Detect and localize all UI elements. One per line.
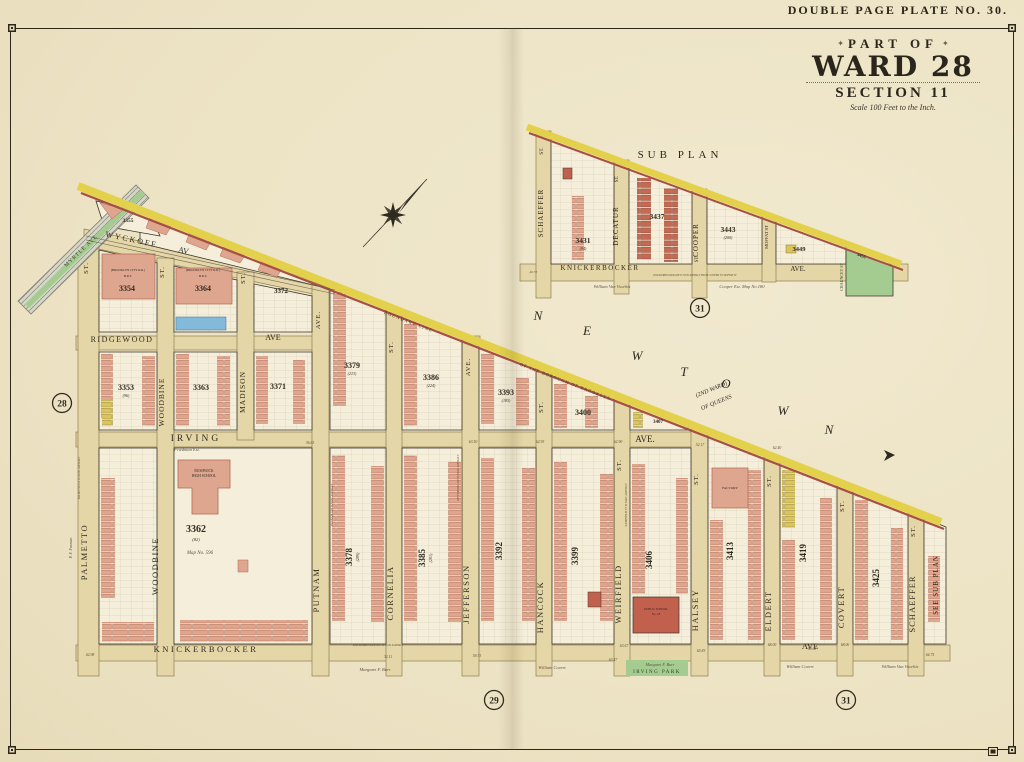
rowhouses <box>481 354 494 424</box>
asphalt-note: JEFFERSON AVE IS NOW ASPHALT <box>456 455 460 501</box>
building-label-bushwick-hs: HIGH SCHOOL <box>192 474 216 478</box>
asphalt-note: KNICKERBOCKER AVE IS NOW ASPHALT <box>352 644 404 647</box>
block-number-3419: 3419 <box>798 544 808 563</box>
pond <box>176 317 226 330</box>
dimension: 32.11 <box>384 655 392 659</box>
rowhouses <box>600 474 613 621</box>
building-label: (BROOKLYN CITY R.R.) <box>111 268 145 272</box>
street-label: ST. <box>83 262 90 274</box>
svg-text:31: 31 <box>841 696 851 706</box>
block-subnumber: (224) <box>427 383 436 388</box>
rowhouses <box>180 620 308 642</box>
block-number-3379: 3379 <box>344 361 360 370</box>
plate-ref-29: 29 <box>485 691 504 710</box>
owner-name: William Van Voorhis <box>882 664 919 669</box>
rowhouses <box>176 354 189 426</box>
asphalt-note: KNICKERBOCKER AVE IS NOW ASPHALT FROM CO… <box>652 274 737 277</box>
block-number-3406: 3406 <box>644 551 654 570</box>
street-label: ST. <box>616 459 623 471</box>
dimension: 68.00 <box>841 643 850 647</box>
block-number-3425: 3425 <box>871 569 881 588</box>
dimension: 62.90 <box>614 440 623 444</box>
street-label: ST. <box>615 176 620 183</box>
street-label: ST. <box>839 500 846 512</box>
street-label-cornelia: CORNELIA <box>385 566 395 621</box>
street-label-jefferson: JEFFERSON <box>461 564 471 623</box>
block-number-3407: 3407 <box>653 420 664 425</box>
rowhouses <box>293 360 305 424</box>
dimension: 69.08 <box>808 647 817 651</box>
asphalt-note: PALMETTO ST IS NOW ASPHALT <box>77 456 81 500</box>
street-label: ST. <box>695 256 700 263</box>
atlas-sheet: DOUBLE PAGE PLATE NO. 30. ✦PART OF✦ WARD… <box>0 0 1024 762</box>
building-label-bushwick-hs: BUSHWICK <box>194 469 214 473</box>
rowhouses <box>748 470 761 640</box>
street-jefferson-ave <box>462 338 479 676</box>
plate-ref-31: 31 <box>837 691 856 710</box>
street-label-weirfield: WEIRFIELD <box>613 564 623 623</box>
atlas-map: ST.ST.ST.AVE.ST.AVE.ST.ST.ST.ST.ST.ST.PA… <box>0 0 1024 762</box>
asphalt-note: PUTNAM AVE IS NOW ASPHALT <box>330 484 334 527</box>
dimension: 65.83 <box>697 649 706 653</box>
street-label-eldert: ELDERT <box>763 590 773 631</box>
block-number-3392: 3392 <box>494 542 504 561</box>
block-number-3443: 3443 <box>721 225 736 234</box>
street-label-knickerbocker: KNICKERBOCKER <box>154 644 259 654</box>
block-number-3355: 3355 <box>123 218 134 224</box>
street-halsey-st <box>691 429 708 676</box>
owner-name: William Van Voorhis <box>594 284 631 289</box>
rowhouses <box>782 470 795 528</box>
dimension: 64.75 <box>926 653 935 657</box>
rowhouses <box>676 478 688 594</box>
block-subnumber: (201) <box>428 553 433 562</box>
street-woodbine-st <box>157 258 174 676</box>
block-number-3437: 3437 <box>650 212 665 221</box>
rowhouses <box>102 400 113 426</box>
rowhouses <box>332 455 345 621</box>
street-label-ridgewood: RIDGEWOOD <box>91 335 154 344</box>
rowhouses <box>142 356 155 426</box>
asphalt-note: WEIRFIELD ST IS NOW ASPHALT <box>624 483 628 527</box>
dimension: 40.73 <box>529 270 537 274</box>
block-number-3385: 3385 <box>417 549 427 568</box>
dimension: 63.67 <box>620 644 630 648</box>
owner-name: Margaret F. Burr <box>645 662 675 667</box>
block-subnumber: (94) <box>580 246 587 251</box>
dimension: 59.33 <box>473 654 482 658</box>
block-number-3378: 3378 <box>344 548 354 567</box>
rowhouses <box>632 464 645 594</box>
building <box>238 560 248 572</box>
building <box>563 168 572 179</box>
block-number-3386: 3386 <box>423 373 439 382</box>
region-label-newtown: W <box>632 348 644 363</box>
street-palmetto-st <box>78 246 99 676</box>
street-label-woodbine: WOODBINE <box>150 537 160 595</box>
rowhouses <box>855 500 868 640</box>
block-subnumber: (96) <box>123 393 130 398</box>
rowhouses <box>516 378 529 426</box>
street-label-schaeffer: SCHAEFFER <box>907 575 917 632</box>
rowhouses <box>820 498 832 640</box>
rowhouses <box>633 412 643 428</box>
street-weirfield-st <box>614 397 630 676</box>
subplan-label-moffat: MOFFAT ST <box>764 225 769 249</box>
dimension: 52.17 <box>696 443 706 447</box>
block-number-3393: 3393 <box>498 388 514 397</box>
dimension: 68.00 <box>768 643 777 647</box>
rowhouses <box>217 356 230 426</box>
building-label: B.R.T. <box>124 274 133 278</box>
boundary-direction-arrow <box>884 450 895 461</box>
rowhouses <box>664 188 678 262</box>
dimension: 62.93 <box>536 440 545 444</box>
plate-ref-28: 28 <box>53 394 72 413</box>
block-subnumber: (185) <box>502 398 511 403</box>
rowhouses <box>404 455 417 621</box>
subplan-label-cooper: COOPER <box>692 223 700 257</box>
printer-ornament <box>988 747 998 756</box>
rowhouses <box>554 462 567 621</box>
dimension: 62.40 <box>773 446 782 450</box>
owner-name: Cooper Est. Map No.180 <box>719 284 765 289</box>
block-number-3362: 3362 <box>186 524 206 535</box>
owner-name: Margaret F. Burr <box>359 667 391 672</box>
street-label-madison: MADISON <box>238 371 247 413</box>
map-number-note: Map No. 596 <box>186 551 214 556</box>
street-label: ST. <box>538 401 545 413</box>
street-label: ST. <box>159 266 166 278</box>
street-label: ST. <box>693 473 700 485</box>
street-label-covert: COVERT <box>836 586 846 629</box>
rowhouses <box>371 466 384 622</box>
block-subnumber: (213) <box>348 371 357 376</box>
block-number-3413: 3413 <box>725 542 735 561</box>
subplan-title: SUB PLAN <box>638 149 723 161</box>
rowhouses <box>101 478 115 598</box>
subplan-label-chauncey: CHAUNCEY ST <box>839 263 844 291</box>
region-label-newtown: T <box>680 364 688 379</box>
svg-text:28: 28 <box>57 399 67 409</box>
street-label-ridgewood-ave: AVE <box>265 333 281 342</box>
street-label-putnam: PUTNAM <box>311 568 321 613</box>
building <box>588 592 601 607</box>
street-label-hancock: HANCOCK <box>535 581 545 634</box>
street-label-halsey: HALSEY <box>690 589 700 632</box>
block-subnumber: (82) <box>192 537 200 542</box>
block-subnumber: (200) <box>724 235 733 240</box>
svg-text:31: 31 <box>695 304 705 314</box>
rowhouses <box>404 324 417 426</box>
building-label-ps18: PUBLIC SCHOOL <box>644 607 668 611</box>
region-label-newtown: N <box>824 422 835 437</box>
subplan-label-schaeffer: SCHAEFFER <box>537 189 545 238</box>
subplan-label-knickerbocker: KNICKERBOCKER <box>560 264 639 272</box>
building-label: (BROOKLYN CITY R.R.) <box>186 268 220 272</box>
region-label-newtown: N <box>533 308 544 323</box>
street-label: AVE. <box>465 358 472 376</box>
region-label-of-queens: OF QUEENS <box>700 394 732 412</box>
block-number-3399: 3399 <box>570 547 580 566</box>
block-number-3372: 3372 <box>274 287 289 295</box>
dimension: 42.98 <box>86 653 95 657</box>
block-number-3371: 3371 <box>270 382 286 391</box>
rowhouses <box>481 458 494 621</box>
owner-name: William Covert <box>538 665 566 670</box>
street-label-irving-ave: AVE. <box>635 434 655 444</box>
rowhouses <box>891 528 903 640</box>
rowhouses <box>554 384 567 428</box>
street-label: AVE. <box>315 311 322 329</box>
see-sub-plan-note: SEE SUB PLAN <box>932 555 940 615</box>
street-label-irving: IRVING <box>171 434 222 444</box>
rowhouses <box>102 622 154 642</box>
rowhouses <box>522 468 535 621</box>
rowhouses <box>710 520 723 640</box>
irving-park-label: IRVING PARK <box>633 670 681 675</box>
block-number-3449: 3449 <box>793 246 807 253</box>
block-number-3363: 3363 <box>193 383 209 392</box>
dimension: 36.63 <box>306 441 315 445</box>
street-putnam-ave <box>312 284 329 676</box>
owner-name: P. F. Furman <box>68 538 73 560</box>
subplan-label-decatur: DECATUR <box>612 206 620 245</box>
rowhouses <box>333 292 346 406</box>
block-number-3354: 3354 <box>119 284 135 293</box>
region-label-newtown: E <box>582 323 591 338</box>
street-label-palmetto: PALMETTO <box>79 524 89 580</box>
block-number-3400: 3400 <box>575 408 591 417</box>
building-label: B.R.T. <box>199 274 208 278</box>
dimension: 63.50 <box>469 440 478 444</box>
owner-name: William Covert <box>786 664 814 669</box>
dimension: 63.47 <box>609 658 619 662</box>
street-covert-st <box>837 485 853 676</box>
compass-rose <box>363 179 427 247</box>
building-label-ps18: No. 18 <box>652 612 661 616</box>
subplan-label-ave: AVE. <box>790 265 805 273</box>
block-number-3364: 3364 <box>195 284 211 293</box>
rowhouses <box>256 356 268 424</box>
rowhouses <box>782 540 795 640</box>
street-madison-st <box>237 272 254 440</box>
street-label: ST. <box>539 147 545 155</box>
block-number-3353: 3353 <box>118 383 134 392</box>
plate-ref-31-sub: 31 <box>691 299 710 318</box>
street-label: ST. <box>240 272 247 284</box>
block-number-3431: 3431 <box>576 236 591 245</box>
street-label: ST. <box>766 475 773 487</box>
owner-name: Friedman Est. <box>173 447 200 452</box>
block-subnumber: (209) <box>355 552 360 561</box>
street-label: ST. <box>910 525 917 537</box>
svg-text:29: 29 <box>489 696 499 706</box>
region-label-newtown: W <box>778 403 790 418</box>
street-label-woodbine: WOODBINE <box>157 378 166 427</box>
street-label: ST. <box>388 341 395 353</box>
building-label-factory: FACTORY <box>722 486 738 490</box>
